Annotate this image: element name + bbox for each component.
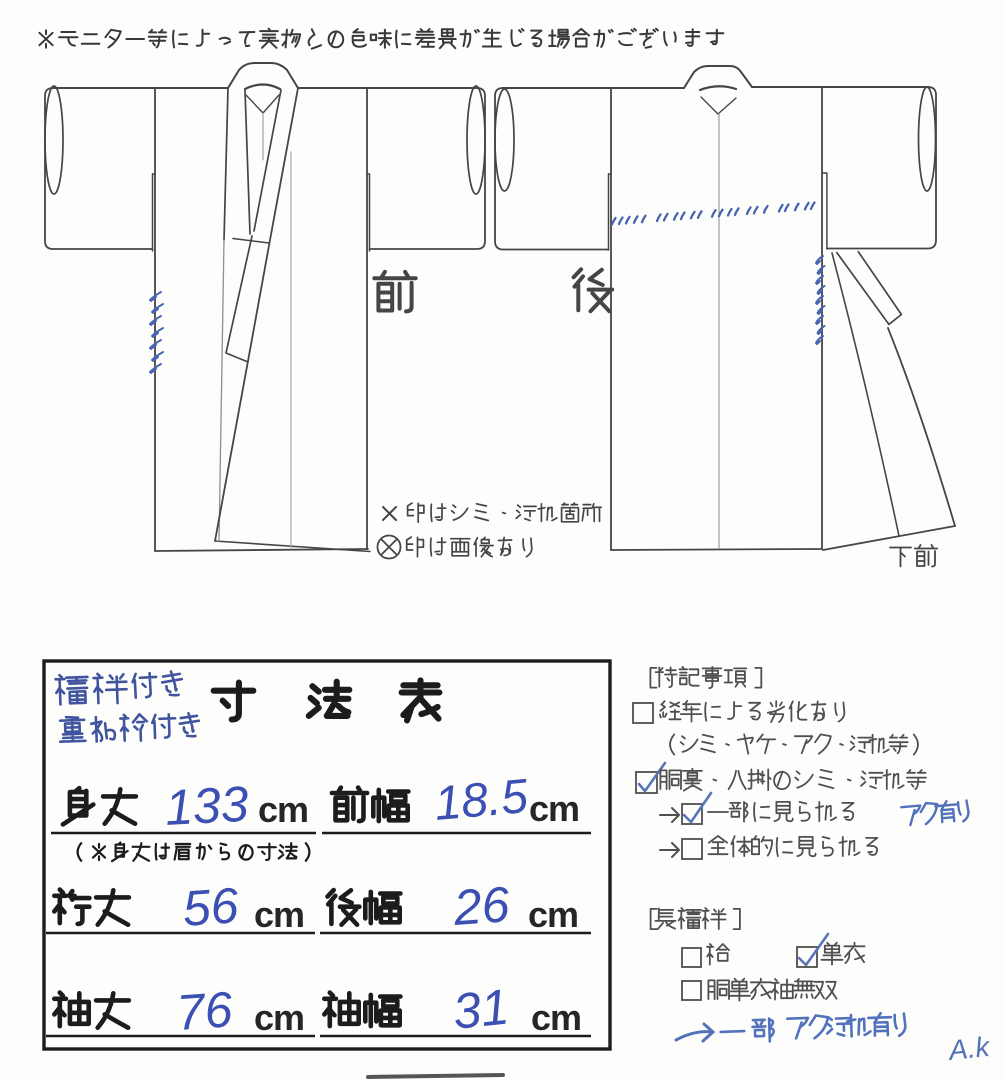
svg-text:18.5: 18.5	[432, 770, 530, 831]
svg-text:cm: cm	[258, 789, 308, 830]
svg-text:26: 26	[451, 876, 512, 936]
svg-text:cm: cm	[528, 894, 578, 935]
svg-text:76: 76	[175, 981, 235, 1041]
svg-text:cm: cm	[254, 997, 304, 1038]
svg-text:133: 133	[164, 776, 250, 836]
svg-text:cm: cm	[254, 894, 304, 935]
svg-text:A.k: A.k	[945, 1031, 992, 1066]
svg-text:cm: cm	[529, 788, 579, 829]
svg-text:cm: cm	[531, 997, 581, 1038]
svg-text:56: 56	[181, 877, 241, 937]
svg-text:31: 31	[450, 978, 511, 1040]
